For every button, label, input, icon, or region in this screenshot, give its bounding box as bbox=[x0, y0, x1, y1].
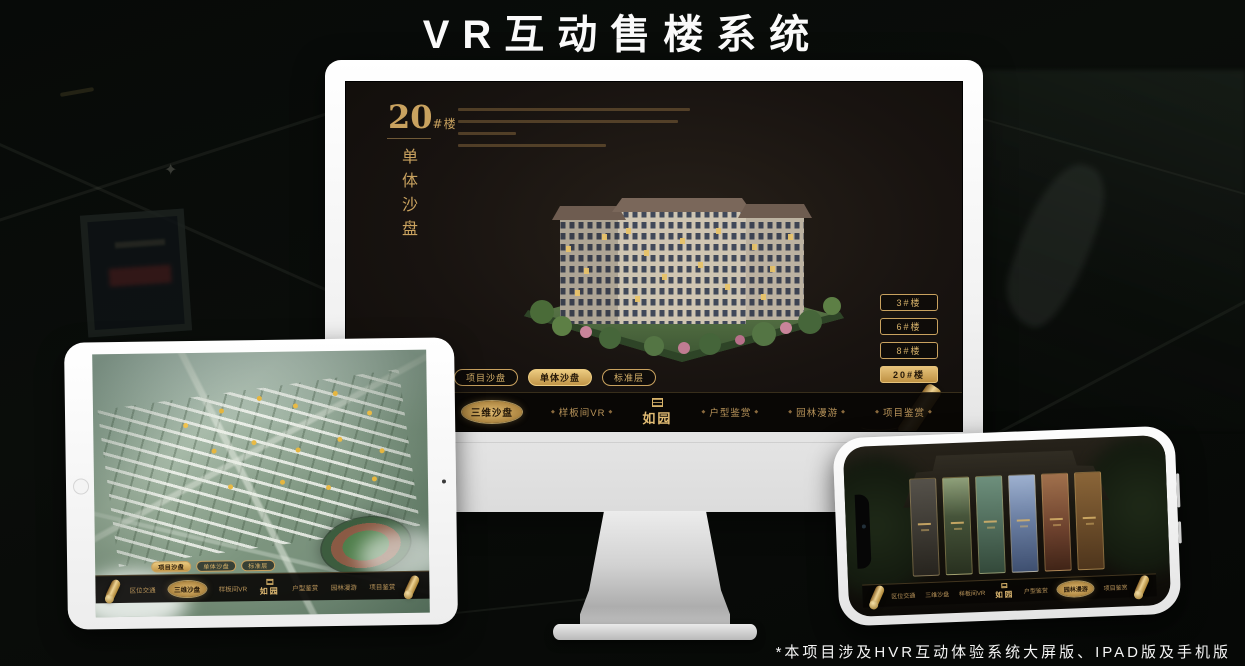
heading-subtitle: 单体沙盘 bbox=[396, 148, 420, 244]
plaque-red-seal bbox=[109, 265, 172, 287]
tablet-device: 项目沙盘 单体沙盘 标准层 区位交通 三维沙盘 样板间VR 如园 户型鉴赏 园林… bbox=[64, 337, 458, 629]
monitor-stand-base bbox=[553, 624, 757, 640]
nav-label: 园林漫游 bbox=[796, 405, 838, 419]
floor-selector: 3#楼 6#楼 8#楼 20#楼 bbox=[880, 294, 938, 383]
tablet-screen: 项目沙盘 单体沙盘 标准层 区位交通 三维沙盘 样板间VR 如园 户型鉴赏 园林… bbox=[92, 350, 430, 618]
nav-item-showroom-vr[interactable]: ◆样板间VR◆ bbox=[551, 405, 613, 419]
home-button[interactable] bbox=[73, 478, 89, 494]
nav-item-garden-roam[interactable]: ◆园林漫游◆ bbox=[788, 405, 846, 419]
scene-panels bbox=[909, 471, 1105, 576]
scene-panel[interactable] bbox=[942, 476, 973, 575]
sandbox-tabs: 项目沙盘 单体沙盘 标准层 bbox=[454, 369, 656, 386]
nav-label: 项目鉴赏 bbox=[1103, 582, 1127, 592]
brand-logo[interactable]: 如园 bbox=[995, 582, 1015, 600]
floor-button-3[interactable]: 3#楼 bbox=[880, 294, 938, 311]
building-number-suffix: #楼 bbox=[433, 117, 457, 131]
nav-label: 园林漫游 bbox=[1064, 583, 1088, 593]
seal-icon bbox=[1001, 583, 1007, 588]
building-3d-render bbox=[514, 154, 850, 366]
tab-standard-floor[interactable]: 标准层 bbox=[241, 560, 275, 571]
nav-label: 样板间VR bbox=[219, 583, 248, 593]
nav-item-project-gallery[interactable]: 项目鉴赏 bbox=[1103, 582, 1127, 592]
brand-logo-text: 如园 bbox=[260, 585, 280, 596]
heading-divider bbox=[387, 138, 431, 139]
phone-screen: 区位交通 三维沙盘 样板间VR 如园 户型鉴赏 园林漫游 项目鉴赏 bbox=[843, 435, 1171, 617]
diamond-ornament: ◆ bbox=[788, 409, 793, 415]
nav-item-3d-sandbox[interactable]: 三维沙盘 bbox=[462, 401, 522, 423]
scene-panel[interactable] bbox=[909, 478, 940, 577]
tablet-sandbox-tabs: 项目沙盘 单体沙盘 标准层 bbox=[151, 560, 275, 573]
brand-logo[interactable]: 如园 bbox=[260, 578, 280, 596]
tab-single-sandbox[interactable]: 单体沙盘 bbox=[528, 369, 592, 386]
nav-item-3d-sandbox[interactable]: 三维沙盘 bbox=[925, 589, 949, 599]
diamond-ornament: ◆ bbox=[551, 409, 556, 415]
nav-item-unit-gallery[interactable]: ◆户型鉴赏◆ bbox=[702, 405, 760, 419]
phone-notch bbox=[855, 494, 872, 568]
nav-item-unit-gallery[interactable]: 户型鉴赏 bbox=[292, 582, 318, 592]
description-text-block bbox=[458, 108, 698, 156]
map-road bbox=[0, 95, 380, 228]
monitor-stand-neck bbox=[580, 511, 730, 631]
seal-icon bbox=[266, 578, 273, 584]
scene-panel[interactable] bbox=[1041, 473, 1072, 572]
camera-dot bbox=[442, 479, 446, 483]
nav-label: 三维沙盘 bbox=[471, 405, 513, 419]
nav-item-project-gallery[interactable]: ◆项目鉴赏◆ bbox=[875, 405, 933, 419]
scene-panel[interactable] bbox=[1008, 474, 1039, 573]
seal-icon bbox=[652, 398, 663, 407]
nav-label: 项目鉴赏 bbox=[883, 405, 925, 419]
nav-label: 户型鉴赏 bbox=[1024, 585, 1048, 595]
floor-button-20[interactable]: 20#楼 bbox=[880, 366, 938, 383]
building-number: 20 bbox=[388, 98, 433, 136]
tab-project-sandbox[interactable]: 项目沙盘 bbox=[454, 369, 518, 386]
gold-scroll-icon bbox=[872, 585, 882, 607]
diamond-ornament: ◆ bbox=[609, 409, 614, 415]
gold-scroll-icon bbox=[108, 579, 117, 601]
aerial-photo-fragment bbox=[975, 70, 1245, 430]
nav-label: 样板间VR bbox=[959, 587, 986, 597]
nav-label: 户型鉴赏 bbox=[292, 582, 318, 592]
tab-standard-floor[interactable]: 标准层 bbox=[602, 369, 656, 386]
nav-item-project-gallery[interactable]: 项目鉴赏 bbox=[369, 581, 395, 591]
tablet-bottom-nav: 区位交通 三维沙盘 样板间VR 如园 户型鉴赏 园林漫游 项目鉴赏 bbox=[95, 571, 429, 604]
nav-item-3d-sandbox[interactable]: 三维沙盘 bbox=[168, 580, 206, 597]
nav-item-location-traffic[interactable]: 区位交通 bbox=[891, 590, 915, 600]
phone-device: 区位交通 三维沙盘 样板间VR 如园 户型鉴赏 园林漫游 项目鉴赏 bbox=[833, 426, 1182, 627]
poster-canvas: ✦ VR互动售楼系统 20#楼 单体沙盘 bbox=[0, 0, 1245, 666]
tab-project-sandbox[interactable]: 项目沙盘 bbox=[151, 561, 191, 573]
nav-label: 样板间VR bbox=[559, 405, 606, 419]
nav-item-showroom-vr[interactable]: 样板间VR bbox=[219, 583, 248, 593]
nav-label: 三维沙盘 bbox=[174, 583, 200, 593]
building-number-badges bbox=[183, 423, 188, 428]
floor-button-6[interactable]: 6#楼 bbox=[880, 318, 938, 335]
nav-item-showroom-vr[interactable]: 样板间VR bbox=[959, 587, 986, 597]
nav-label: 区位交通 bbox=[129, 584, 155, 594]
gold-scroll-icon bbox=[1137, 575, 1147, 597]
nav-label: 三维沙盘 bbox=[925, 589, 949, 599]
nav-label: 园林漫游 bbox=[331, 581, 357, 591]
nav-item-unit-gallery[interactable]: 户型鉴赏 bbox=[1024, 585, 1048, 595]
building-heading: 20#楼 bbox=[388, 98, 457, 136]
brand-logo[interactable]: 如园 bbox=[642, 398, 672, 427]
floor-button-8[interactable]: 8#楼 bbox=[880, 342, 938, 359]
nav-item-location-traffic[interactable]: 区位交通 bbox=[129, 584, 155, 594]
brand-logo-text: 如园 bbox=[642, 408, 672, 427]
nav-item-garden-roam[interactable]: 园林漫游 bbox=[1057, 580, 1094, 596]
diamond-ornament: ◆ bbox=[875, 409, 880, 415]
gold-scroll-icon bbox=[408, 574, 417, 596]
diamond-ornament: ◆ bbox=[928, 409, 933, 415]
plaque-text-line bbox=[115, 239, 165, 248]
scene-panel[interactable] bbox=[1074, 471, 1105, 570]
nav-label: 户型鉴赏 bbox=[709, 405, 751, 419]
page-title: VR互动售楼系统 bbox=[0, 2, 1245, 60]
brand-logo-text: 如园 bbox=[995, 588, 1014, 600]
diamond-ornament: ◆ bbox=[702, 409, 707, 415]
tab-single-sandbox[interactable]: 单体沙盘 bbox=[196, 560, 236, 572]
nav-label: 区位交通 bbox=[891, 590, 915, 600]
award-plaque bbox=[80, 209, 192, 338]
map-label bbox=[60, 87, 94, 97]
scene-panel[interactable] bbox=[975, 475, 1006, 574]
front-camera-icon bbox=[862, 524, 866, 528]
compass-star-icon: ✦ bbox=[164, 160, 177, 180]
diamond-ornament: ◆ bbox=[841, 409, 846, 415]
diamond-ornament: ◆ bbox=[754, 409, 759, 415]
nav-label: 项目鉴赏 bbox=[369, 581, 395, 591]
footnote-text: *本项目涉及HVR互动体验系统大屏版、IPAD版及手机版 bbox=[776, 641, 1231, 662]
nav-item-garden-roam[interactable]: 园林漫游 bbox=[331, 581, 357, 591]
